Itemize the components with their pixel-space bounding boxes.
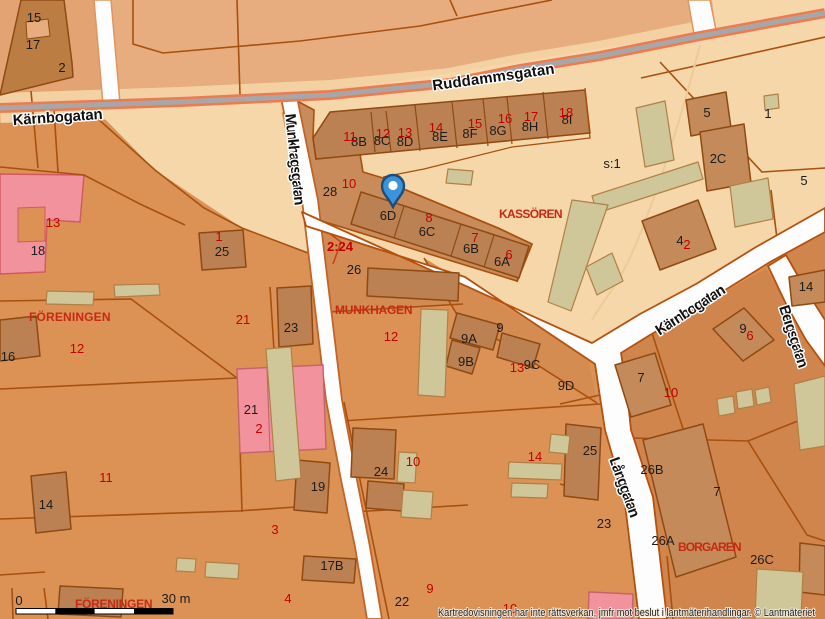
svg-text:Kartredovisningen har inte rät: Kartredovisningen har inte rättsverkan, … bbox=[438, 607, 815, 619]
svg-text:23: 23 bbox=[597, 516, 611, 531]
svg-text:1: 1 bbox=[764, 106, 771, 121]
svg-text:22: 22 bbox=[395, 594, 409, 609]
svg-text:9D: 9D bbox=[558, 378, 575, 393]
svg-text:28: 28 bbox=[323, 184, 337, 199]
svg-text:7: 7 bbox=[637, 370, 644, 385]
svg-text:2: 2 bbox=[255, 421, 262, 436]
svg-text:KASSÖREN: KASSÖREN bbox=[499, 206, 563, 221]
svg-text:24: 24 bbox=[374, 464, 388, 479]
svg-text:18: 18 bbox=[559, 105, 573, 120]
svg-text:11: 11 bbox=[343, 129, 357, 144]
svg-text:26C: 26C bbox=[750, 552, 774, 567]
svg-text:6: 6 bbox=[746, 328, 753, 343]
svg-text:5: 5 bbox=[703, 105, 710, 120]
svg-text:6D: 6D bbox=[380, 208, 397, 223]
svg-text:21: 21 bbox=[236, 312, 250, 327]
svg-text:FÖRENINGEN: FÖRENINGEN bbox=[29, 309, 111, 324]
svg-text:14: 14 bbox=[429, 120, 443, 135]
svg-text:12: 12 bbox=[376, 126, 390, 141]
svg-text:6C: 6C bbox=[419, 224, 436, 239]
svg-text:10: 10 bbox=[406, 454, 420, 469]
svg-text:0: 0 bbox=[15, 593, 22, 608]
svg-text:9A: 9A bbox=[461, 331, 477, 346]
svg-text:MUNKHAGEN: MUNKHAGEN bbox=[335, 303, 413, 317]
svg-text:17B: 17B bbox=[320, 558, 343, 573]
svg-text:23: 23 bbox=[284, 320, 298, 335]
svg-text:1: 1 bbox=[215, 229, 222, 244]
svg-text:17: 17 bbox=[26, 37, 40, 52]
svg-text:11: 11 bbox=[99, 470, 113, 485]
svg-text:18: 18 bbox=[31, 243, 45, 258]
svg-text:30 m: 30 m bbox=[162, 591, 191, 606]
svg-text:7: 7 bbox=[471, 230, 478, 245]
svg-text:14: 14 bbox=[528, 449, 542, 464]
svg-text:7: 7 bbox=[713, 484, 720, 499]
svg-text:14: 14 bbox=[799, 279, 813, 294]
svg-text:10: 10 bbox=[664, 385, 678, 400]
svg-text:2C: 2C bbox=[710, 151, 727, 166]
svg-text:13: 13 bbox=[398, 125, 412, 140]
svg-text:10: 10 bbox=[342, 176, 356, 191]
svg-text:6: 6 bbox=[505, 247, 512, 262]
svg-text:2: 2 bbox=[58, 60, 65, 75]
svg-text:4: 4 bbox=[284, 591, 291, 606]
svg-text:s:1: s:1 bbox=[603, 156, 620, 171]
svg-text:13: 13 bbox=[510, 360, 524, 375]
svg-text:BORGAREN: BORGAREN bbox=[678, 540, 742, 554]
svg-text:17: 17 bbox=[524, 109, 538, 124]
svg-text:12: 12 bbox=[70, 341, 84, 356]
svg-text:19: 19 bbox=[311, 479, 325, 494]
svg-text:14: 14 bbox=[39, 497, 53, 512]
svg-text:9: 9 bbox=[496, 320, 503, 335]
svg-text:15: 15 bbox=[468, 116, 482, 131]
svg-text:12: 12 bbox=[384, 329, 398, 344]
svg-text:26B: 26B bbox=[640, 462, 663, 477]
svg-text:15: 15 bbox=[27, 10, 41, 25]
svg-text:25: 25 bbox=[583, 443, 597, 458]
svg-text:9C: 9C bbox=[524, 357, 541, 372]
svg-text:21: 21 bbox=[244, 402, 258, 417]
svg-text:25: 25 bbox=[215, 244, 229, 259]
svg-text:26: 26 bbox=[347, 262, 361, 277]
svg-text:2:24: 2:24 bbox=[327, 239, 354, 254]
svg-text:16: 16 bbox=[498, 111, 512, 126]
svg-text:5: 5 bbox=[800, 173, 807, 188]
svg-text:26A: 26A bbox=[651, 533, 674, 548]
svg-text:9: 9 bbox=[426, 581, 433, 596]
svg-text:13: 13 bbox=[46, 215, 60, 230]
svg-text:8: 8 bbox=[425, 210, 432, 225]
svg-text:3: 3 bbox=[271, 522, 278, 537]
svg-text:2: 2 bbox=[683, 237, 690, 252]
svg-text:16: 16 bbox=[1, 349, 15, 364]
svg-text:9B: 9B bbox=[458, 354, 474, 369]
